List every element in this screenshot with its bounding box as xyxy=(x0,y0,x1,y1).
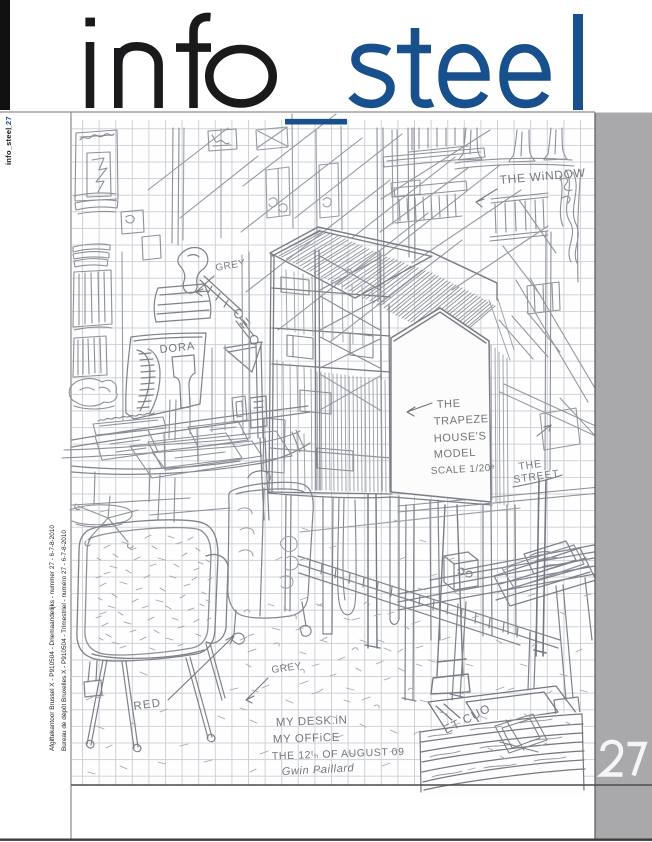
svg-text:MY OFFiCE: MY OFFiCE xyxy=(273,732,341,746)
svg-text:MODEL: MODEL xyxy=(434,447,477,461)
svg-text:_27: _27 xyxy=(4,116,13,130)
svg-text:info_steel: info_steel xyxy=(4,128,13,165)
svg-text:MY DESK.iN: MY DESK.iN xyxy=(276,715,348,729)
svg-text:THE: THE xyxy=(437,398,461,411)
svg-text:Afgiftekantoor Brussel X - P91: Afgiftekantoor Brussel X - P910504 - Dri… xyxy=(49,525,56,751)
svg-text:Bureau de dépôt Bruxelles X -: Bureau de dépôt Bruxelles X - P910504 - … xyxy=(61,530,68,751)
